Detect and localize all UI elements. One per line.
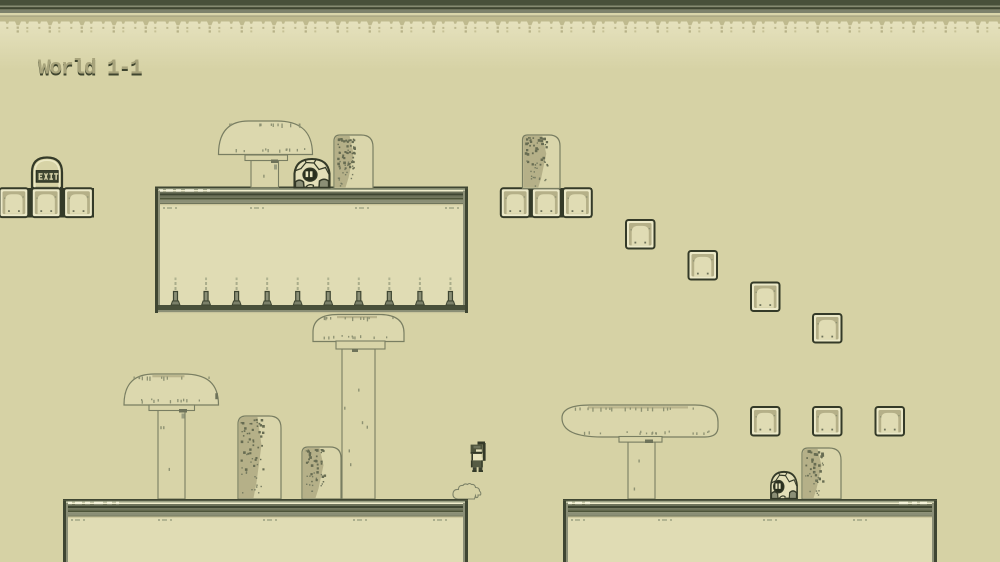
svg-text:World 1-1: World 1-1 — [38, 58, 142, 81]
